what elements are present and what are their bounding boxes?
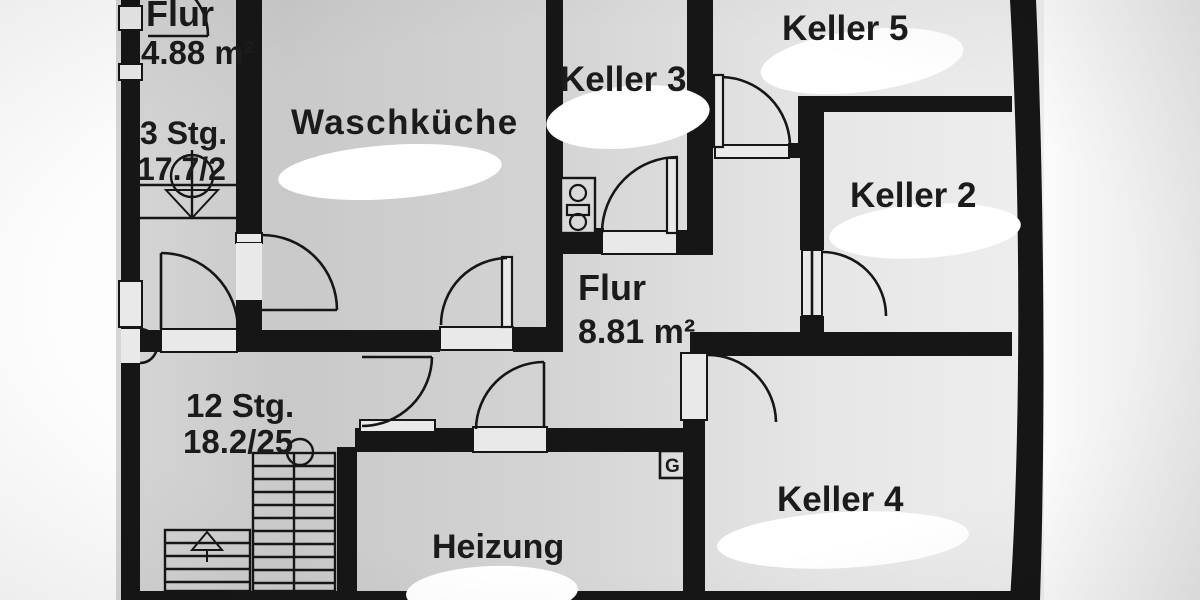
- photo-vignette: [0, 0, 1200, 600]
- floor-plan-svg: G Flur 4.88 m² Waschküche Keller 3 Kelle…: [0, 0, 1200, 600]
- floor-plan-photo: G Flur 4.88 m² Waschküche Keller 3 Kelle…: [0, 0, 1200, 600]
